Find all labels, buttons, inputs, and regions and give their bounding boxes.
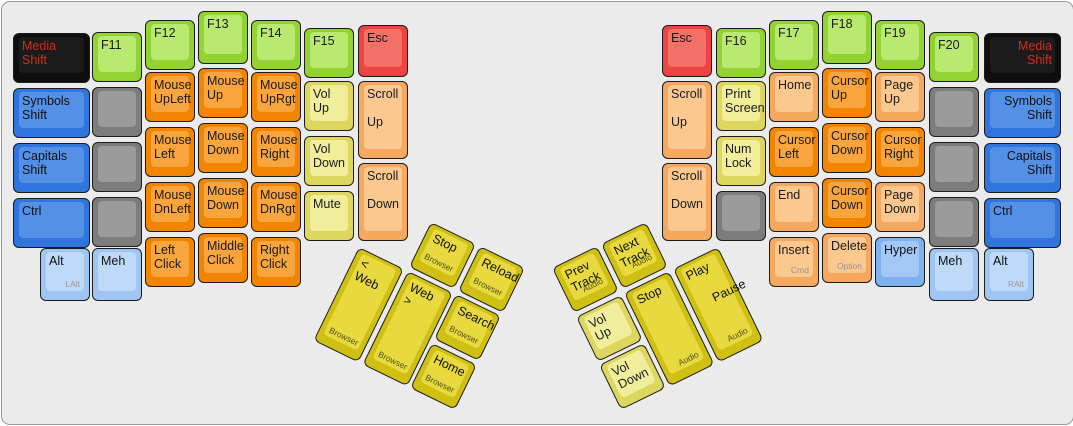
key-browser-stop-label: Stop (430, 231, 465, 258)
key-f19[interactable]: F19 (875, 20, 925, 70)
key-alt-left-label: Alt (49, 254, 81, 268)
key-f20-top: F20 (935, 36, 973, 72)
key-mouse-up-top: Mouse Up (204, 72, 242, 108)
key-ctrl-left[interactable]: Ctrl (13, 198, 90, 248)
key-mouse-up-label: Mouse Up (207, 74, 239, 102)
key-blank-left-1-top (98, 91, 136, 127)
key-blank-left-2-top (98, 146, 136, 182)
key-scroll-up-left-top: ScrollUp (364, 85, 402, 149)
key-meh-left-top: Meh (98, 252, 136, 291)
key-middle-click-label: Middle Click (207, 239, 239, 267)
key-mouse-left[interactable]: Mouse Left (145, 127, 195, 177)
key-home[interactable]: Home (769, 72, 819, 122)
key-vol-down-left-top: Vol Down (310, 140, 348, 176)
key-ctrl-left-label: Ctrl (22, 204, 81, 218)
key-cursor-down-2[interactable]: Cursor Down (822, 178, 872, 228)
key-meh-right-top: Meh (935, 252, 973, 291)
key-cursor-down-2-top: Cursor Down (828, 182, 866, 218)
key-mouse-down-2[interactable]: Mouse Down (198, 178, 248, 228)
key-blank-right-3[interactable] (929, 142, 979, 192)
key-blank-right-2[interactable] (929, 87, 979, 137)
key-print-screen-top: Print Screen (722, 85, 760, 121)
key-page-down-top: Page Down (881, 186, 919, 222)
key-f19-top: F19 (881, 24, 919, 60)
key-esc-left-top: Esc (364, 29, 402, 67)
key-meh-left-label: Meh (101, 254, 133, 268)
key-right-click-label: Right Click (260, 243, 292, 271)
key-f12-top: F12 (151, 24, 189, 60)
key-meh-left[interactable]: Meh (92, 248, 142, 301)
key-vol-down-left[interactable]: Vol Down (304, 136, 354, 186)
key-insert-sublabel: Cmd (791, 265, 809, 275)
key-web-forward-sublabel: Browser (377, 349, 409, 372)
key-blank-right-2-top (935, 91, 973, 127)
key-esc-right-top: Esc (668, 29, 706, 67)
key-num-lock-label: Num Lock (725, 142, 757, 170)
key-insert[interactable]: InsertCmd (769, 237, 819, 287)
key-audio-stop-sublabel: Audio (676, 349, 700, 368)
key-cursor-left-top: Cursor Left (775, 131, 813, 167)
key-insert-top: InsertCmd (775, 241, 813, 277)
key-mouse-upleft-label: Mouse UpLeft (154, 78, 186, 106)
key-capitals-shift-right-label: Capitals Shift (993, 149, 1052, 177)
key-play-pause-sublabel: Audio (725, 325, 749, 344)
key-f16-label: F16 (725, 34, 757, 48)
key-mute[interactable]: Mute (304, 191, 354, 241)
key-f11-label: F11 (101, 38, 133, 52)
key-mouse-down-2-top: Mouse Down (204, 182, 242, 218)
key-delete-sublabel: Option (837, 261, 862, 271)
key-media-shift-left-label: Media Shift (22, 39, 81, 67)
key-symbols-shift-right[interactable]: Symbols Shift (984, 88, 1061, 138)
key-capitals-shift-right-top: Capitals Shift (990, 147, 1055, 183)
key-blank-right-4[interactable] (929, 197, 979, 247)
key-browser-home-top: HomeBrowser (420, 349, 470, 398)
key-scroll-up-left-label: Scroll (367, 87, 399, 101)
key-browser-reload-top: ReloadBrowser (468, 252, 518, 301)
key-alt-right-top: AltRAlt (990, 252, 1028, 291)
key-f17-label: F17 (778, 26, 810, 40)
key-page-up-top: Page Up (881, 76, 919, 112)
key-ctrl-right-top: Ctrl (990, 202, 1055, 238)
key-end-top: End (775, 186, 813, 222)
key-mouse-left-label: Mouse Left (154, 133, 186, 161)
key-f13-top: F13 (204, 15, 242, 54)
key-blank-right-4-top (935, 201, 973, 237)
key-cursor-down-1-top: Cursor Down (828, 127, 866, 163)
key-mouse-up[interactable]: Mouse Up (198, 68, 248, 118)
key-symbols-shift-right-label: Symbols Shift (993, 94, 1052, 122)
key-alt-left-sublabel: LAlt (65, 279, 80, 289)
key-blank-left-2[interactable] (92, 142, 142, 192)
key-web-forward-label: Web > (401, 280, 442, 319)
key-mouse-dnleft-top: Mouse DnLeft (151, 186, 189, 222)
key-capitals-shift-left[interactable]: Capitals Shift (13, 143, 90, 193)
key-vol-down-thumb-label: Vol Down (610, 352, 651, 391)
key-media-shift-right-top: Media Shift (990, 37, 1055, 73)
key-cursor-right-label: Cursor Right (884, 133, 916, 161)
key-prev-track-top: Prev TrackAudio (559, 252, 609, 301)
key-alt-right[interactable]: AltRAlt (984, 248, 1034, 301)
key-f13[interactable]: F13 (198, 11, 248, 64)
key-middle-click[interactable]: Middle Click (198, 233, 248, 283)
key-mute-top: Mute (310, 195, 348, 231)
key-scroll-down-right-label-2: Down (671, 198, 703, 212)
key-f15-top: F15 (310, 32, 348, 68)
key-mouse-down-1-top: Mouse Down (204, 127, 242, 163)
key-f18-top: F18 (828, 15, 866, 54)
key-meh-right-label: Meh (938, 254, 970, 268)
key-scroll-down-right-top: ScrollDown (668, 167, 706, 231)
key-scroll-up-right-label-2: Up (671, 116, 703, 130)
key-vol-up-thumb-top: Vol Up (583, 301, 633, 350)
key-left-click[interactable]: Left Click (145, 237, 195, 287)
key-capitals-shift-left-label: Capitals Shift (22, 149, 81, 177)
key-cursor-left-label: Cursor Left (778, 133, 810, 161)
key-vol-down-left-label: Vol Down (313, 142, 345, 170)
key-mouse-right-top: Mouse Right (257, 131, 295, 167)
key-page-up[interactable]: Page Up (875, 72, 925, 122)
key-mouse-dnleft-label: Mouse DnLeft (154, 188, 186, 216)
key-mouse-right-label: Mouse Right (260, 133, 292, 161)
key-symbols-shift-right-top: Symbols Shift (990, 92, 1055, 128)
key-esc-right[interactable]: Esc (662, 25, 712, 77)
key-left-click-top: Left Click (151, 241, 189, 277)
key-scroll-up-right[interactable]: ScrollUp (662, 81, 712, 159)
key-cursor-right-top: Cursor Right (881, 131, 919, 167)
key-esc-left-label: Esc (367, 31, 399, 45)
key-f13-label: F13 (207, 17, 239, 31)
key-mouse-dnrgt-label: Mouse DnRgt (260, 188, 292, 216)
key-scroll-up-right-label: Scroll (671, 87, 703, 101)
key-esc-right-label: Esc (671, 31, 703, 45)
key-mouse-uprgt-top: Mouse UpRgt (257, 76, 295, 112)
key-f14[interactable]: F14 (251, 20, 301, 70)
key-f18-label: F18 (831, 17, 863, 31)
key-f17-top: F17 (775, 24, 813, 60)
key-f16[interactable]: F16 (716, 28, 766, 78)
key-alt-right-sublabel: RAlt (1008, 279, 1024, 289)
key-ctrl-right[interactable]: Ctrl (984, 198, 1061, 248)
key-f15[interactable]: F15 (304, 28, 354, 78)
key-hyper-top: Hyper (881, 241, 919, 277)
key-cursor-right[interactable]: Cursor Right (875, 127, 925, 177)
key-browser-home-label: Home (431, 352, 466, 379)
key-media-shift-left-top: Media Shift (19, 37, 84, 73)
key-right-click[interactable]: Right Click (251, 237, 301, 287)
key-cursor-up-top: Cursor Up (828, 72, 866, 108)
key-f14-top: F14 (257, 24, 295, 60)
key-f12-label: F12 (154, 26, 186, 40)
key-scroll-down-right-label: Scroll (671, 169, 703, 183)
key-vol-down-thumb-top: Vol Down (606, 349, 656, 398)
key-f19-label: F19 (884, 26, 916, 40)
key-symbols-shift-left-label: Symbols Shift (22, 94, 81, 122)
key-cursor-down-2-label: Cursor Down (831, 184, 863, 212)
key-mouse-right[interactable]: Mouse Right (251, 127, 301, 177)
key-ctrl-left-top: Ctrl (19, 202, 84, 238)
key-symbols-shift-left-top: Symbols Shift (19, 92, 84, 128)
key-mouse-down-1[interactable]: Mouse Down (198, 123, 248, 173)
key-vol-up-left[interactable]: Vol Up (304, 81, 354, 131)
key-alt-left-top: AltLAlt (46, 252, 84, 291)
key-print-screen[interactable]: Print Screen (716, 81, 766, 131)
key-capitals-shift-left-top: Capitals Shift (19, 147, 84, 183)
key-home-top: Home (775, 76, 813, 112)
key-media-shift-right[interactable]: Media Shift (984, 33, 1061, 83)
key-scroll-down-right[interactable]: ScrollDown (662, 163, 712, 241)
key-delete[interactable]: DeleteOption (822, 233, 872, 283)
key-scroll-up-left-label-2: Up (367, 116, 399, 130)
key-f12[interactable]: F12 (145, 20, 195, 70)
key-alt-left[interactable]: AltLAlt (40, 248, 90, 301)
key-cursor-up[interactable]: Cursor Up (822, 68, 872, 118)
key-f16-top: F16 (722, 32, 760, 68)
key-scroll-up-right-top: ScrollUp (668, 85, 706, 149)
key-mouse-dnrgt-top: Mouse DnRgt (257, 186, 295, 222)
key-page-down-label: Page Down (884, 188, 916, 216)
key-hyper[interactable]: Hyper (875, 237, 925, 287)
key-blank-left-3[interactable] (92, 197, 142, 247)
key-play-pause-label: Play (684, 256, 719, 283)
key-mouse-down-2-label: Mouse Down (207, 184, 239, 212)
key-cursor-down-1[interactable]: Cursor Down (822, 123, 872, 173)
key-home-label: Home (778, 78, 810, 92)
key-f17[interactable]: F17 (769, 20, 819, 70)
key-mouse-dnleft[interactable]: Mouse DnLeft (145, 182, 195, 232)
key-blank-right-1-top (722, 195, 760, 231)
key-middle-click-top: Middle Click (204, 237, 242, 273)
key-cursor-down-1-label: Cursor Down (831, 129, 863, 157)
key-f20-label: F20 (938, 38, 970, 52)
key-next-track-top: Next TrackAudio (608, 228, 658, 277)
key-cursor-up-label: Cursor Up (831, 74, 863, 102)
key-f11[interactable]: F11 (92, 32, 142, 82)
key-browser-search-top: SearchBrowser (444, 300, 494, 349)
key-symbols-shift-left[interactable]: Symbols Shift (13, 88, 90, 138)
key-esc-left[interactable]: Esc (358, 25, 408, 77)
key-f11-top: F11 (98, 36, 136, 72)
key-vol-up-left-top: Vol Up (310, 85, 348, 121)
key-delete-label: Delete (831, 239, 863, 253)
key-capitals-shift-right[interactable]: Capitals Shift (984, 143, 1061, 193)
key-scroll-down-left-label-2: Down (367, 198, 399, 212)
key-browser-reload-label: Reload (479, 255, 514, 282)
key-scroll-up-left[interactable]: ScrollUp (358, 81, 408, 159)
keyboard-layout-board: Media ShiftSymbols ShiftCapitals ShiftCt… (1, 1, 1073, 425)
key-num-lock[interactable]: Num Lock (716, 136, 766, 186)
key-mouse-uprgt-label: Mouse UpRgt (260, 78, 292, 106)
key-scroll-down-left-top: ScrollDown (364, 167, 402, 231)
key-num-lock-top: Num Lock (722, 140, 760, 176)
key-f14-label: F14 (260, 26, 292, 40)
key-scroll-down-left[interactable]: ScrollDown (358, 163, 408, 241)
key-blank-right-1[interactable] (716, 191, 766, 241)
key-browser-search-label: Search (455, 303, 490, 330)
key-alt-right-label: Alt (993, 254, 1025, 268)
key-meh-right[interactable]: Meh (929, 248, 979, 301)
key-media-shift-right-label: Media Shift (993, 39, 1052, 67)
key-mouse-down-1-label: Mouse Down (207, 129, 239, 157)
key-left-click-label: Left Click (154, 243, 186, 271)
key-f18[interactable]: F18 (822, 11, 872, 64)
key-media-shift-left[interactable]: Media Shift (13, 33, 90, 83)
key-blank-right-3-top (935, 146, 973, 182)
key-blank-left-3-top (98, 201, 136, 237)
key-mute-label: Mute (313, 197, 345, 211)
key-cursor-left[interactable]: Cursor Left (769, 127, 819, 177)
key-web-back-label: < Web (352, 256, 393, 295)
key-delete-top: DeleteOption (828, 237, 866, 273)
key-blank-left-1[interactable] (92, 87, 142, 137)
key-vol-up-thumb-label: Vol Up (587, 304, 628, 343)
key-print-screen-label: Print Screen (725, 87, 757, 115)
key-end-label: End (778, 188, 810, 202)
key-vol-up-left-label: Vol Up (313, 87, 345, 115)
key-end[interactable]: End (769, 182, 819, 232)
key-insert-label: Insert (778, 243, 810, 257)
key-hyper-label: Hyper (884, 243, 916, 257)
key-scroll-down-left-label: Scroll (367, 169, 399, 183)
key-web-back-sublabel: Browser (328, 325, 360, 348)
key-browser-stop-top: StopBrowser (419, 228, 469, 277)
key-right-click-top: Right Click (257, 241, 295, 277)
key-audio-stop-label: Stop (635, 280, 670, 307)
key-mouse-left-top: Mouse Left (151, 131, 189, 167)
key-mouse-upleft[interactable]: Mouse UpLeft (145, 72, 195, 122)
key-play-pause-label-2: Pause (710, 285, 732, 305)
key-ctrl-right-label: Ctrl (993, 204, 1052, 218)
key-page-up-label: Page Up (884, 78, 916, 106)
key-page-down[interactable]: Page Down (875, 182, 925, 232)
key-f20[interactable]: F20 (929, 32, 979, 82)
key-mouse-dnrgt[interactable]: Mouse DnRgt (251, 182, 301, 232)
key-f15-label: F15 (313, 34, 345, 48)
key-mouse-upleft-top: Mouse UpLeft (151, 76, 189, 112)
key-mouse-uprgt[interactable]: Mouse UpRgt (251, 72, 301, 122)
